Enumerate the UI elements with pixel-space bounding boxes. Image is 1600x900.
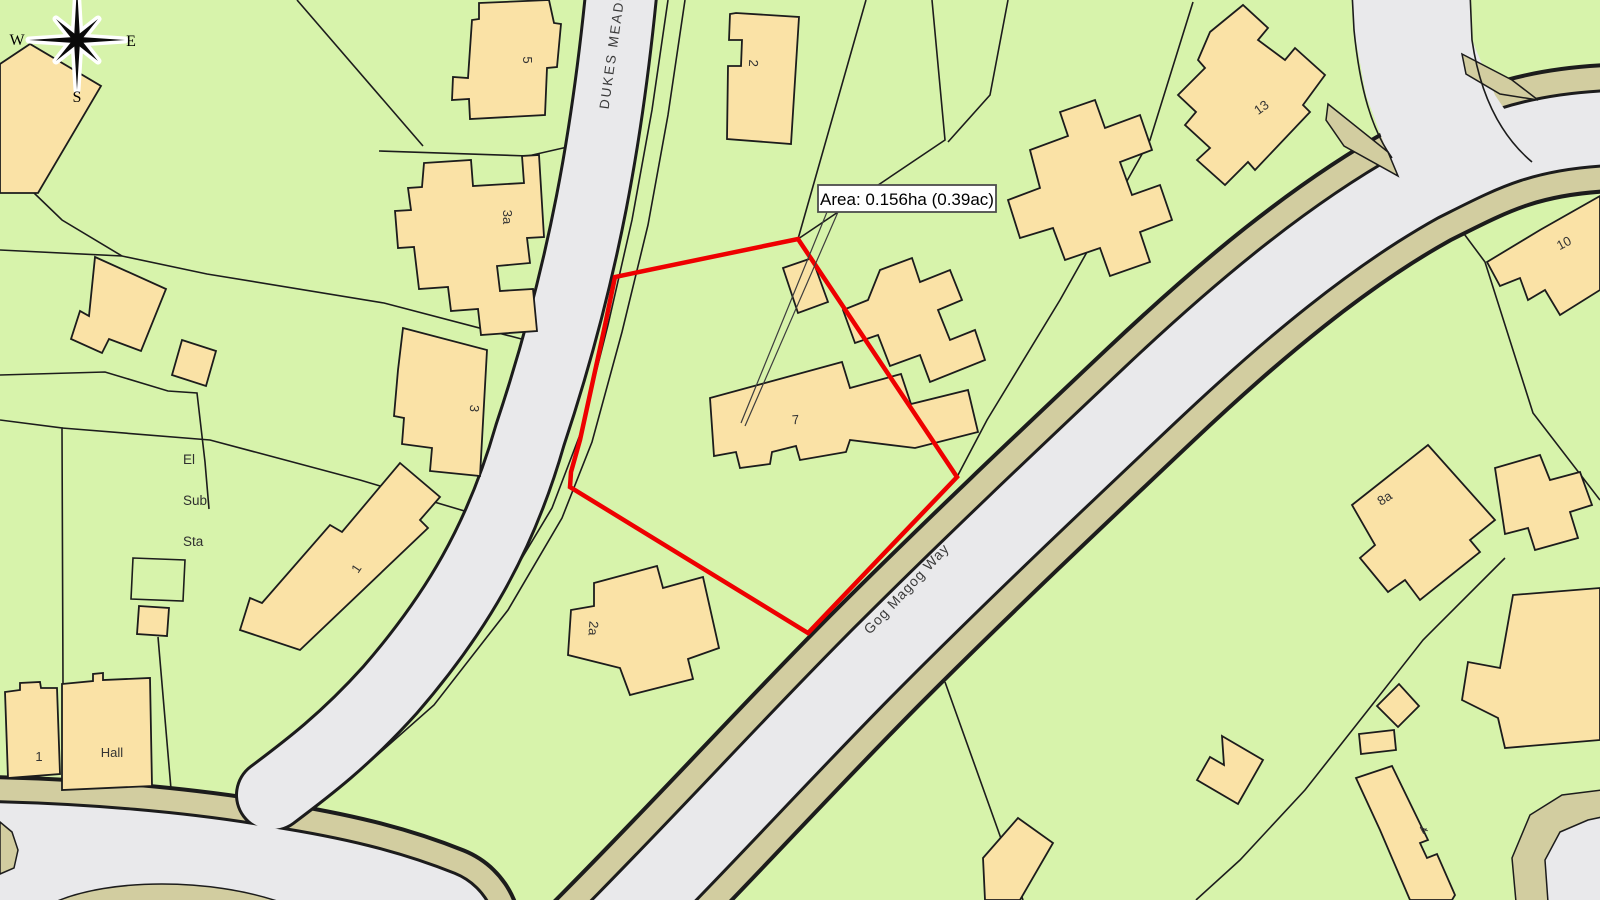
compass-east: E (126, 33, 136, 50)
compass-south: S (73, 89, 82, 106)
map-viewport[interactable]: Area: 0.156ha (0.39ac) DUKES MEADOW Gog … (0, 0, 1600, 900)
substation-line1: El (183, 452, 195, 467)
label-building-2: 2 (746, 59, 761, 67)
substation-building (137, 606, 169, 636)
label-building-3a: 3a (500, 210, 515, 225)
substation-line2: Sub (183, 493, 207, 508)
label-building-3: 3 (467, 404, 483, 413)
label-building-1-hall: 1 (35, 749, 42, 764)
area-callout-text: Area: 0.156ha (0.39ac) (820, 190, 994, 209)
building-1-hall-annex (5, 682, 60, 778)
label-building-2a: 2a (585, 621, 601, 637)
compass-west: W (9, 32, 25, 49)
label-building-5: 5 (520, 56, 535, 63)
building-2 (727, 13, 799, 144)
label-hall: Hall (101, 745, 124, 760)
substation-line3: Sta (183, 534, 204, 549)
label-building-7: 7 (791, 412, 800, 428)
area-callout: Area: 0.156ha (0.39ac) (818, 185, 996, 212)
map-canvas[interactable]: Area: 0.156ha (0.39ac) DUKES MEADOW Gog … (0, 0, 1600, 900)
building-hall (62, 673, 152, 790)
building-small-rect (1359, 730, 1396, 754)
